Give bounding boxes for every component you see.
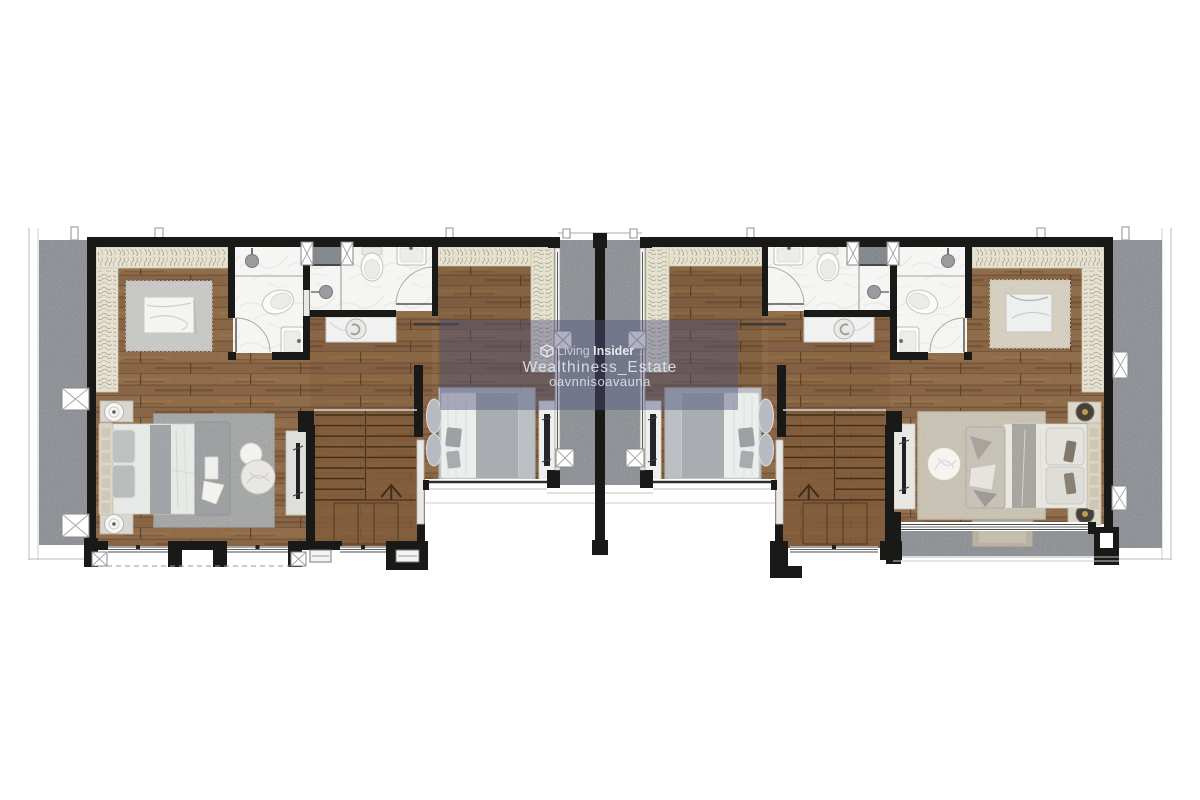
svg-text:oavnnisoavauna: oavnnisoavauna (549, 374, 651, 389)
svg-text:Living Insider …: Living Insider … (557, 344, 644, 358)
